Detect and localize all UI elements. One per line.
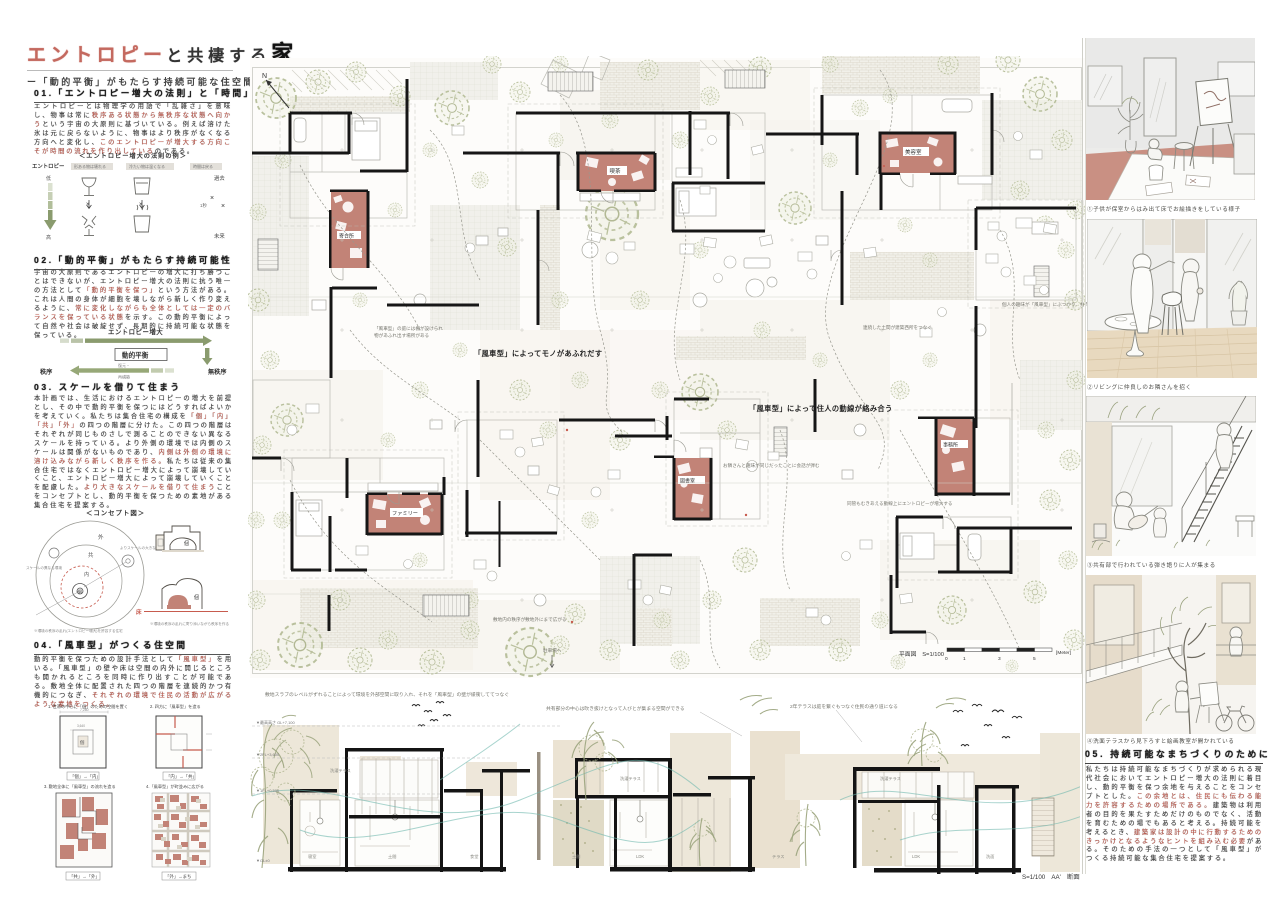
svg-text:「内」→「共」: 「内」→「共」	[166, 773, 197, 780]
svg-text:連続した土間が建築西所をつなぐ: 連続した土間が建築西所をつなぐ	[863, 324, 932, 331]
svg-text:冷たい物は温くなる: 冷たい物は温くなる	[129, 163, 165, 169]
svg-text:洗濯テラス: 洗濯テラス	[330, 767, 351, 774]
svg-text:お隣さんと趣味が同じだったことに会話が弾む: お隣さんと趣味が同じだったことに会話が弾む	[723, 462, 820, 469]
svg-text:3,640: 3,640	[77, 724, 85, 728]
svg-text:駐車場へ: 駐車場へ	[543, 647, 562, 654]
svg-text:喫茶: 喫茶	[610, 167, 622, 175]
svg-text:同管もむきあえる動線上にエントロピーが増大する: 同管もむきあえる動線上にエントロピーが増大する	[847, 500, 953, 507]
svg-text:過去: 過去	[214, 174, 225, 182]
svg-text:洗濯テラス: 洗濯テラス	[880, 775, 901, 782]
svg-text:S=1/100 AA' 断面図: S=1/100 AA' 断面図	[1022, 873, 1080, 881]
svg-text:▼最高高さ GL+7,100: ▼最高高さ GL+7,100	[256, 719, 296, 725]
svg-text:敷地スラブのレベルがずれることによって環境を外部空間に取り入: 敷地スラブのレベルがずれることによって環境を外部空間に取り入れ、それを「風車型」…	[265, 691, 509, 698]
svg-text:共有部分の中心は吹き抜けとなって人びとが集まる空間ができる: 共有部分の中心は吹き抜けとなって人びとが集まる空間ができる	[546, 705, 685, 712]
svg-text:物があふれ出す場所がある: 物があふれ出す場所がある	[374, 332, 429, 339]
svg-text:エントロピー: エントロピー	[32, 162, 64, 170]
svg-text:×: ×	[86, 202, 90, 208]
svg-text:スケールの異なる環境: スケールの異なる環境	[26, 565, 62, 570]
svg-text:寝室: 寝室	[308, 853, 316, 859]
svg-text:「風車型」によって住人の動線が絡み合う: 「風車型」によって住人の動線が絡み合う	[749, 404, 893, 413]
svg-text:美容室: 美容室	[905, 148, 922, 156]
svg-text:LDK: LDK	[636, 854, 644, 859]
svg-text:＜コンセプト図＞: ＜コンセプト図＞	[86, 508, 145, 517]
svg-text:事務所: 事務所	[943, 442, 958, 449]
svg-text:4.「風車型」が町並みに広がる: 4.「風車型」が町並みに広がる	[146, 783, 204, 790]
svg-text:2. 四方に「風車型」を造る: 2. 四方に「風車型」を造る	[150, 703, 201, 710]
svg-text:0: 0	[945, 656, 948, 662]
svg-text:「風車型」によってモノがあふれだす: 「風車型」によってモノがあふれだす	[474, 349, 602, 358]
svg-text:寄合所: 寄合所	[339, 233, 354, 240]
svg-text:外: 外	[98, 533, 104, 541]
svg-text:未来: 未来	[214, 232, 225, 240]
svg-text:7,280: 7,280	[80, 708, 89, 712]
svg-text:1秒: 1秒	[200, 202, 207, 209]
svg-text:×: ×	[210, 195, 214, 202]
svg-text:敷地内の秩序が敷地外にまで広がる: 敷地内の秩序が敷地外にまで広がる	[493, 616, 567, 623]
svg-text:低: 低	[46, 175, 51, 182]
svg-text:時間は戻る: 時間は戻る	[193, 163, 213, 169]
svg-text:図書室: 図書室	[680, 478, 695, 485]
svg-text:▼GL±0: ▼GL±0	[256, 858, 270, 863]
svg-text:無秩序: 無秩序	[208, 368, 227, 376]
svg-text:「風車型」の庭には棚が設けられ: 「風車型」の庭には棚が設けられ	[374, 325, 443, 332]
svg-text:再構築: 再構築	[118, 374, 130, 380]
svg-text:高: 高	[46, 234, 51, 241]
svg-text:内: 内	[84, 570, 89, 578]
svg-text:個人の趣味が「風車型」にぶつかり、共有部分で人びとが集まる: 個人の趣味が「風車型」にぶつかり、共有部分で人びとが集まる	[1002, 301, 1088, 308]
svg-text:床: 床	[136, 608, 142, 616]
svg-text:洗面: 洗面	[986, 853, 994, 860]
svg-text:共: 共	[88, 551, 94, 559]
svg-text:個: 個	[80, 739, 85, 746]
svg-text:1: 1	[963, 656, 966, 662]
svg-text:※環境の秩序の乱れに寄り添いながら秩序を作る: ※環境の秩序の乱れに寄り添いながら秩序を作る	[150, 621, 229, 626]
svg-text:「個」→「内」: 「個」→「内」	[70, 773, 101, 780]
svg-text:個: 個	[194, 594, 199, 601]
svg-text:N: N	[262, 73, 267, 80]
svg-text:食堂: 食堂	[470, 853, 478, 860]
svg-text:▼2FL+3,600: ▼2FL+3,600	[256, 752, 280, 757]
svg-text:LDK: LDK	[912, 854, 920, 859]
svg-text:秩序: 秩序	[40, 368, 53, 376]
svg-text:3: 3	[998, 656, 1001, 662]
svg-text:土間: 土間	[572, 853, 580, 860]
svg-text:×: ×	[221, 203, 225, 210]
svg-text:形ある物は壊れる: 形ある物は壊れる	[74, 163, 106, 169]
svg-text:ファミリー: ファミリー	[392, 510, 418, 517]
svg-text:個: 個	[184, 540, 189, 547]
svg-text:5: 5	[1033, 656, 1036, 662]
svg-text:洗濯テラス: 洗濯テラス	[620, 775, 641, 782]
svg-text:「外」→まち: 「外」→まち	[165, 873, 191, 880]
svg-text:▼1FL+0,500: ▼1FL+0,500	[256, 788, 280, 793]
svg-text:平面図 S=1/100: 平面図 S=1/100	[899, 651, 944, 658]
svg-text:エントロピー増大: エントロピー増大	[108, 327, 163, 336]
svg-text:動的平衡: 動的平衡	[122, 351, 149, 360]
svg-text:「共」→「外」: 「共」→「外」	[69, 873, 100, 880]
svg-text:土間: 土間	[388, 853, 396, 860]
svg-text:[Meter]: [Meter]	[1056, 650, 1071, 656]
svg-text:2年テラスは庭を繋ぐもつなぐ住民の通り道になる: 2年テラスは庭を繋ぐもつなぐ住民の通り道になる	[790, 703, 898, 710]
svg-text:3. 敷地全体に「風車型」の流れを造る: 3. 敷地全体に「風車型」の流れを造る	[44, 783, 116, 790]
svg-text:復元・: 復元・	[118, 362, 130, 368]
svg-text:＜エントロピー増大の法則の例＞: ＜エントロピー増大の法則の例＞	[79, 152, 187, 160]
svg-text:※環境の秩序の乱れ(エントロピー増大)を許容する住宅: ※環境の秩序の乱れ(エントロピー増大)を許容する住宅	[34, 628, 123, 633]
